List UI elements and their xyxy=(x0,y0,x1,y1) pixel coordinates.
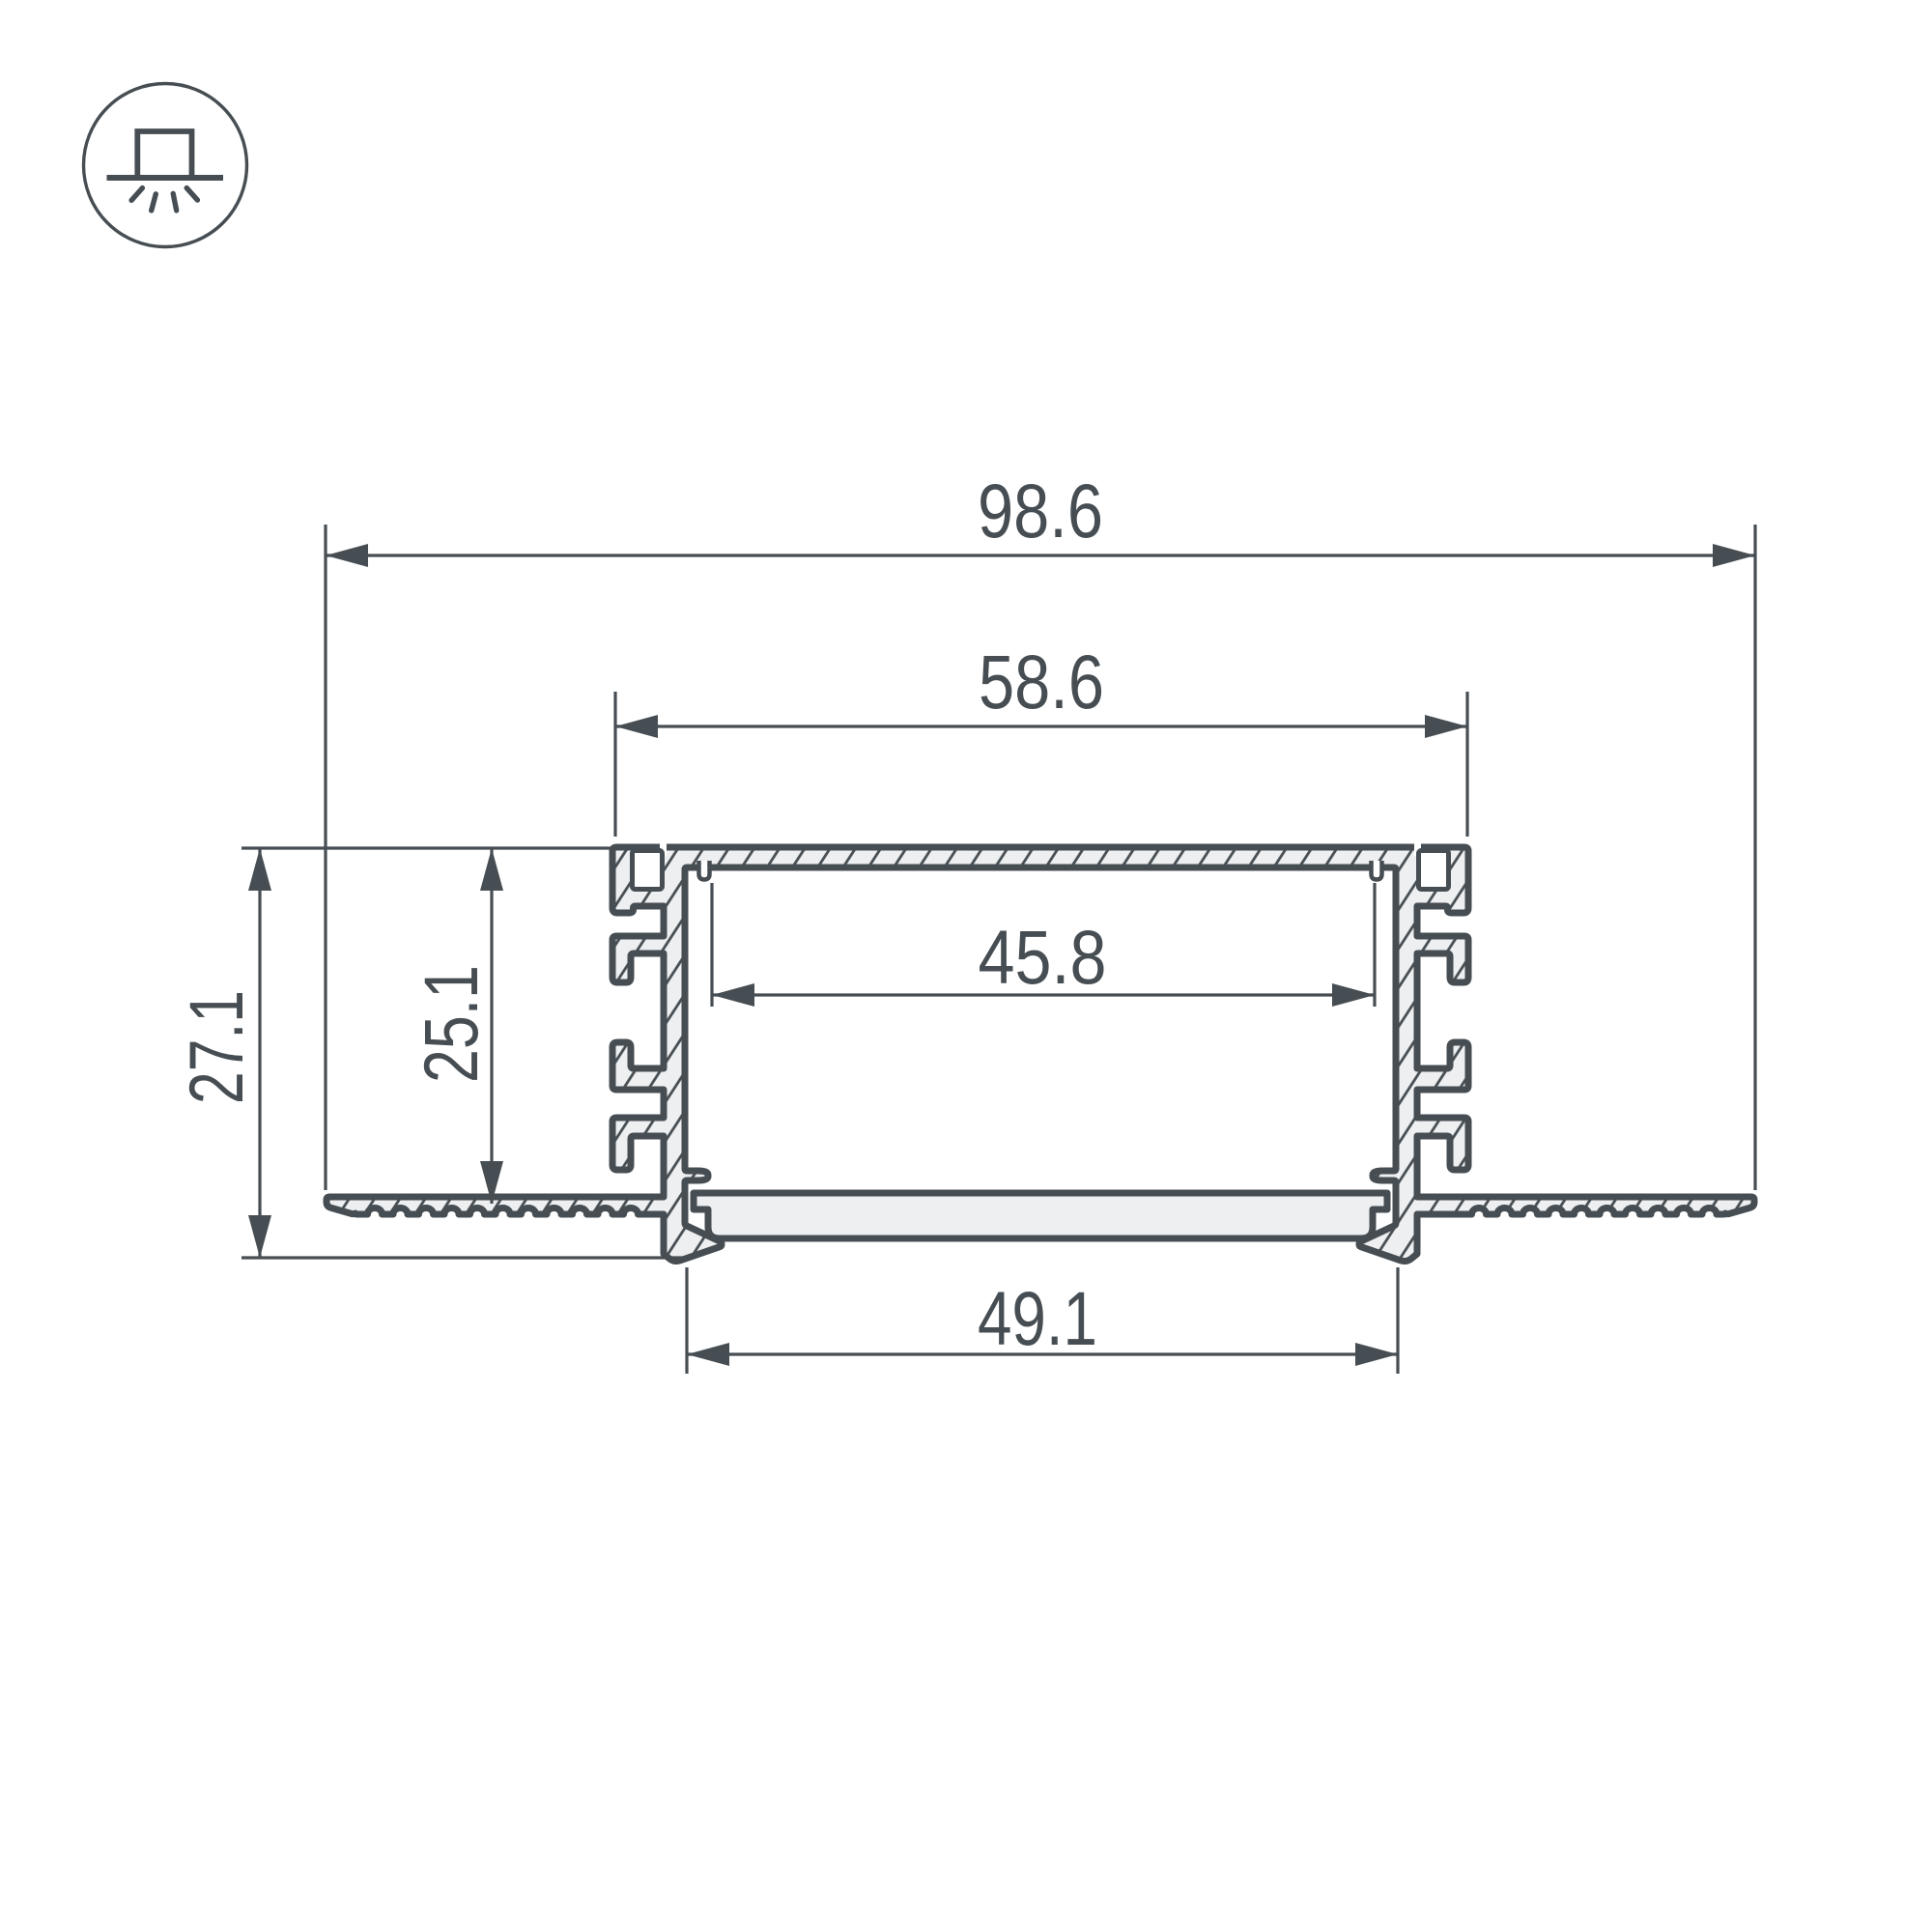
svg-text:58.6: 58.6 xyxy=(979,639,1104,724)
svg-text:49.1: 49.1 xyxy=(978,1275,1097,1361)
svg-text:98.6: 98.6 xyxy=(978,468,1103,554)
svg-text:25.1: 25.1 xyxy=(408,965,494,1083)
svg-text:27.1: 27.1 xyxy=(173,990,259,1104)
svg-text:45.8: 45.8 xyxy=(979,914,1107,1000)
